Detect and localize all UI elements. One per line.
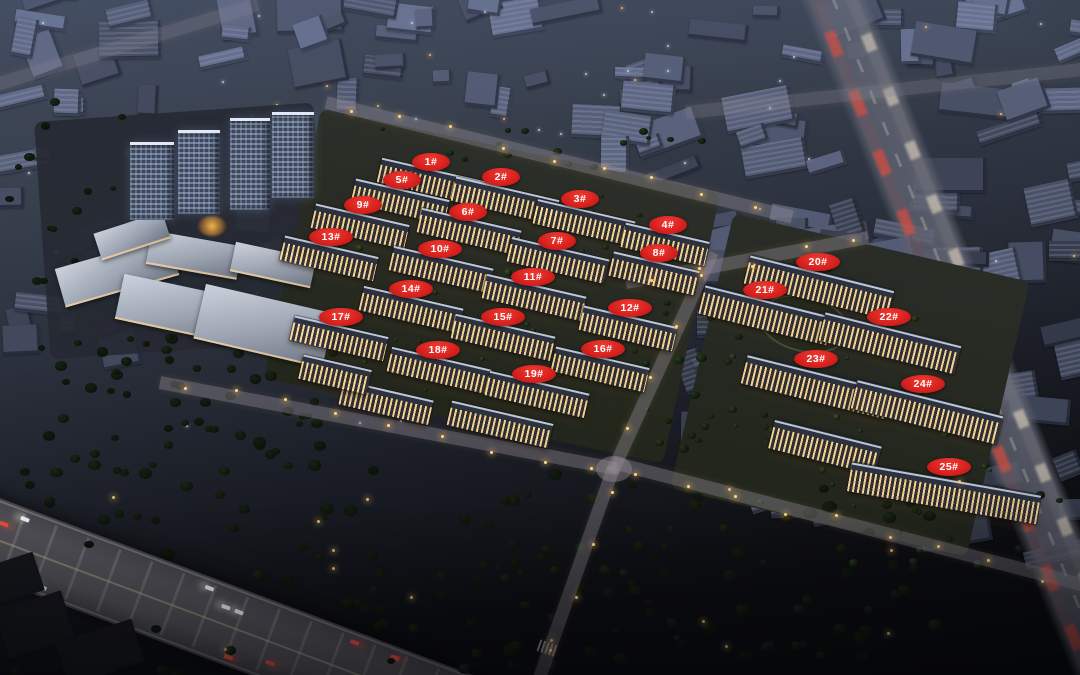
- building-marker-label: 2#: [495, 171, 508, 183]
- aerial-rendering: 1# 2# 3# 4# 5# 6# 7# 8# 9# 10# 11# 12# 1…: [0, 0, 1080, 675]
- building-marker-11[interactable]: 11#: [511, 268, 555, 286]
- building-marker-label: 1#: [425, 156, 438, 168]
- building-marker-label: 12#: [620, 302, 639, 314]
- building-marker-17[interactable]: 17#: [319, 308, 363, 326]
- building-marker-label: 24#: [913, 378, 932, 390]
- building-marker-18[interactable]: 18#: [416, 341, 460, 359]
- building-marker-13[interactable]: 13#: [309, 228, 353, 246]
- building-marker-20[interactable]: 20#: [796, 253, 840, 271]
- building-marker-label: 17#: [331, 311, 350, 323]
- building-marker-label: 14#: [401, 283, 420, 295]
- building-marker-10[interactable]: 10#: [418, 240, 462, 258]
- building-marker-label: 8#: [653, 247, 666, 259]
- building-marker-23[interactable]: 23#: [794, 350, 838, 368]
- building-marker-9[interactable]: 9#: [344, 196, 382, 214]
- building-marker-label: 3#: [574, 193, 587, 205]
- building-marker-label: 25#: [939, 461, 958, 473]
- building-marker-4[interactable]: 4#: [649, 216, 687, 234]
- building-marker-24[interactable]: 24#: [901, 375, 945, 393]
- building-marker-label: 10#: [430, 243, 449, 255]
- building-marker-label: 19#: [524, 368, 543, 380]
- building-marker-16[interactable]: 16#: [581, 340, 625, 358]
- building-marker-5[interactable]: 5#: [383, 171, 421, 189]
- building-marker-label: 22#: [879, 311, 898, 323]
- building-marker-label: 13#: [321, 231, 340, 243]
- building-marker-label: 18#: [428, 344, 447, 356]
- building-marker-19[interactable]: 19#: [512, 365, 556, 383]
- building-marker-6[interactable]: 6#: [449, 203, 487, 221]
- building-marker-label: 7#: [551, 235, 564, 247]
- building-marker-label: 15#: [493, 311, 512, 323]
- building-marker-label: 4#: [662, 219, 675, 231]
- building-marker-label: 9#: [357, 199, 370, 211]
- building-marker-21[interactable]: 21#: [743, 281, 787, 299]
- building-marker-label: 20#: [808, 256, 827, 268]
- building-marker-label: 21#: [755, 284, 774, 296]
- building-marker-label: 5#: [396, 174, 409, 186]
- building-marker-label: 16#: [593, 343, 612, 355]
- building-marker-14[interactable]: 14#: [389, 280, 433, 298]
- building-marker-22[interactable]: 22#: [867, 308, 911, 326]
- building-marker-12[interactable]: 12#: [608, 299, 652, 317]
- building-marker-1[interactable]: 1#: [412, 153, 450, 171]
- building-marker-2[interactable]: 2#: [482, 168, 520, 186]
- building-marker-label: 6#: [462, 206, 475, 218]
- building-marker-label: 11#: [524, 271, 542, 283]
- building-marker-3[interactable]: 3#: [561, 190, 599, 208]
- building-marker-8[interactable]: 8#: [640, 244, 678, 262]
- building-marker-15[interactable]: 15#: [481, 308, 525, 326]
- building-markers: 1# 2# 3# 4# 5# 6# 7# 8# 9# 10# 11# 12# 1…: [0, 0, 1080, 675]
- building-marker-25[interactable]: 25#: [927, 458, 971, 476]
- building-marker-label: 23#: [806, 353, 825, 365]
- building-marker-7[interactable]: 7#: [538, 232, 576, 250]
